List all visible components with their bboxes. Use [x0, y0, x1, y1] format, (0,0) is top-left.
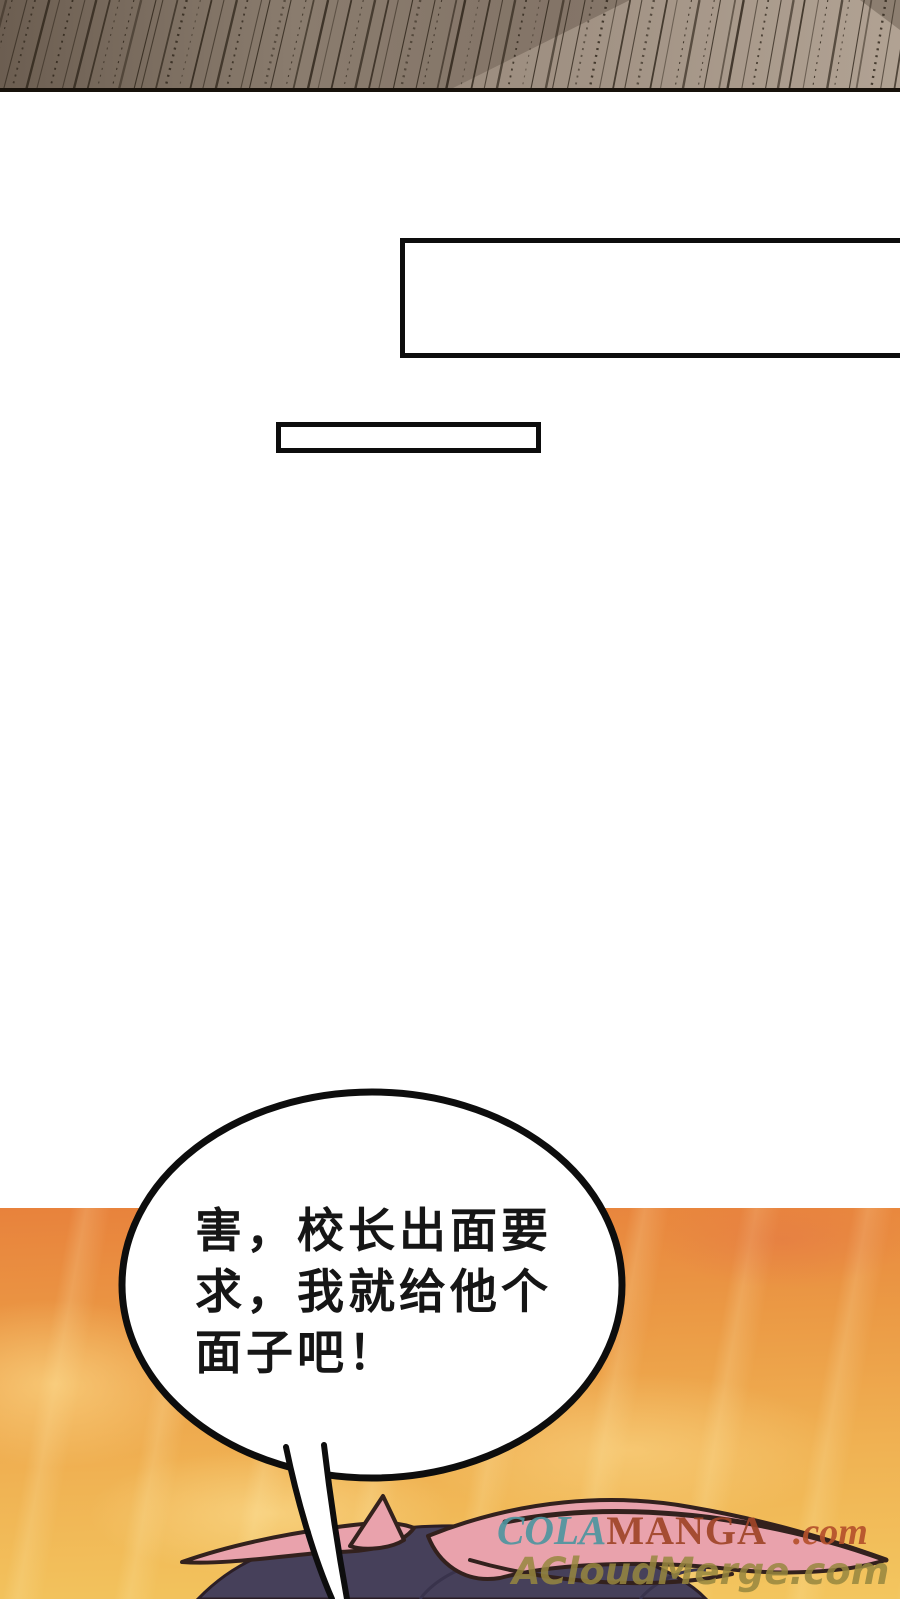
caption-box-1: [400, 238, 900, 358]
manga-page: 害，校长出面要 求，我就给他个 面子吧！ COLAMANGA.com AClou…: [0, 0, 900, 1599]
dialogue-line-2: 求，我就给他个: [195, 1261, 615, 1322]
watermark-manga-text: MANGA: [606, 1508, 767, 1553]
caption-box-2: [276, 422, 541, 453]
watermark-cola-text: COLA: [497, 1507, 606, 1553]
watermark-dotcom-text: .com: [793, 1511, 868, 1553]
dialogue-line-3: 面子吧！: [195, 1322, 615, 1383]
speech-bubble-text: 害，校长出面要 求，我就给他个 面子吧！: [195, 1200, 615, 1383]
dialogue-line-1: 害，校长出面要: [195, 1200, 615, 1261]
watermark-colamanga: COLAMANGA.com: [497, 1506, 868, 1554]
wood-panel-bottom-edge: [0, 88, 900, 92]
watermark-acloudmerge: ACloudMerge.com: [512, 1550, 889, 1593]
wood-texture-panel: [0, 0, 900, 92]
